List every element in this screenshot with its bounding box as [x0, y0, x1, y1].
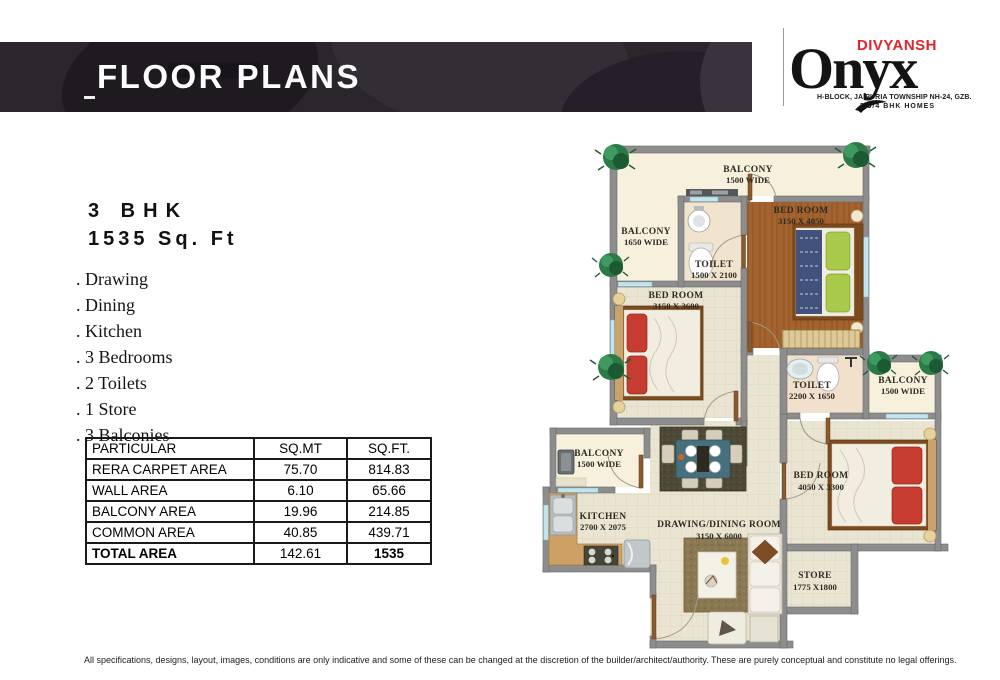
hob-icon [584, 546, 618, 565]
window-master [864, 237, 869, 297]
room-dims-master-bedroom: 3150 X 4050 [778, 216, 825, 226]
room-dims-balcony-left: 1650 WIDE [624, 237, 668, 247]
wardrobe-icon [782, 330, 860, 348]
side-table [750, 616, 778, 642]
floor-plan: BALCONY 1500 WIDE BALCONY 1650 WIDE TOIL… [0, 0, 1000, 680]
room-label-balcony-top: BALCONY [723, 165, 773, 175]
door-master-bedroom [748, 322, 752, 352]
room-dims-drawing-dining: 3150 X 6000 [696, 531, 743, 541]
room-label-balcony-kitchen: BALCONY [574, 449, 624, 459]
window-toilet1 [690, 197, 718, 202]
room-label-bedroom2: BED ROOM [649, 291, 704, 301]
door-main-entrance [652, 595, 656, 639]
room-label-balcony-right: BALCONY [878, 376, 928, 386]
window-kitchen [544, 505, 549, 540]
corridor-floor [747, 355, 780, 421]
bedroom2-bed [613, 293, 703, 413]
room-dims-balcony-top: 1500 WIDE [726, 175, 770, 185]
room-dims-balcony-kitchen: 1500 WIDE [577, 459, 621, 469]
room-label-toilet1: TOILET [695, 260, 733, 270]
door-balcony-kitchen [639, 455, 643, 488]
bedroom3-bed [828, 428, 936, 542]
room-dims-toilet1: 1500 X 2100 [691, 270, 738, 280]
window-kitchen-balcony [558, 488, 598, 493]
sofa [748, 534, 782, 614]
window-balcony-right [886, 414, 928, 419]
room-label-kitchen: KITCHEN [580, 512, 627, 522]
room-dims-store: 1775 X1800 [793, 582, 837, 592]
door-toilet1 [742, 235, 746, 268]
coffee-table [698, 552, 736, 598]
room-dims-bedroom3: 4050 X 3300 [798, 482, 845, 492]
room-label-drawing-dining: DRAWING/DINING ROOM [657, 520, 781, 530]
door-bedroom2 [734, 391, 738, 421]
room-label-master-bedroom: BED ROOM [774, 206, 829, 216]
dining-set [660, 427, 746, 491]
door-toilet2 [826, 418, 830, 444]
room-dims-balcony-right: 1500 WIDE [881, 386, 925, 396]
room-dims-kitchen: 2700 X 2075 [580, 522, 627, 532]
fridge-icon [624, 540, 650, 568]
brochure-page: FLOOR PLANS DIVYANSH Onyx H-BLOCK, JAIPU… [0, 0, 1000, 680]
master-bed [793, 210, 863, 334]
room-dims-bedroom2: 3150 X 3600 [653, 301, 700, 311]
window-balcony-left [618, 282, 652, 287]
room-dims-toilet2: 2200 X 1650 [789, 391, 836, 401]
room-label-toilet2: TOILET [793, 381, 831, 391]
room-label-balcony-left: BALCONY [621, 227, 671, 237]
armchair [708, 612, 746, 644]
room-label-store: STORE [798, 571, 832, 581]
door-bedroom3 [782, 463, 786, 499]
shelf-icon [686, 189, 738, 196]
room-label-bedroom3: BED ROOM [794, 471, 849, 481]
